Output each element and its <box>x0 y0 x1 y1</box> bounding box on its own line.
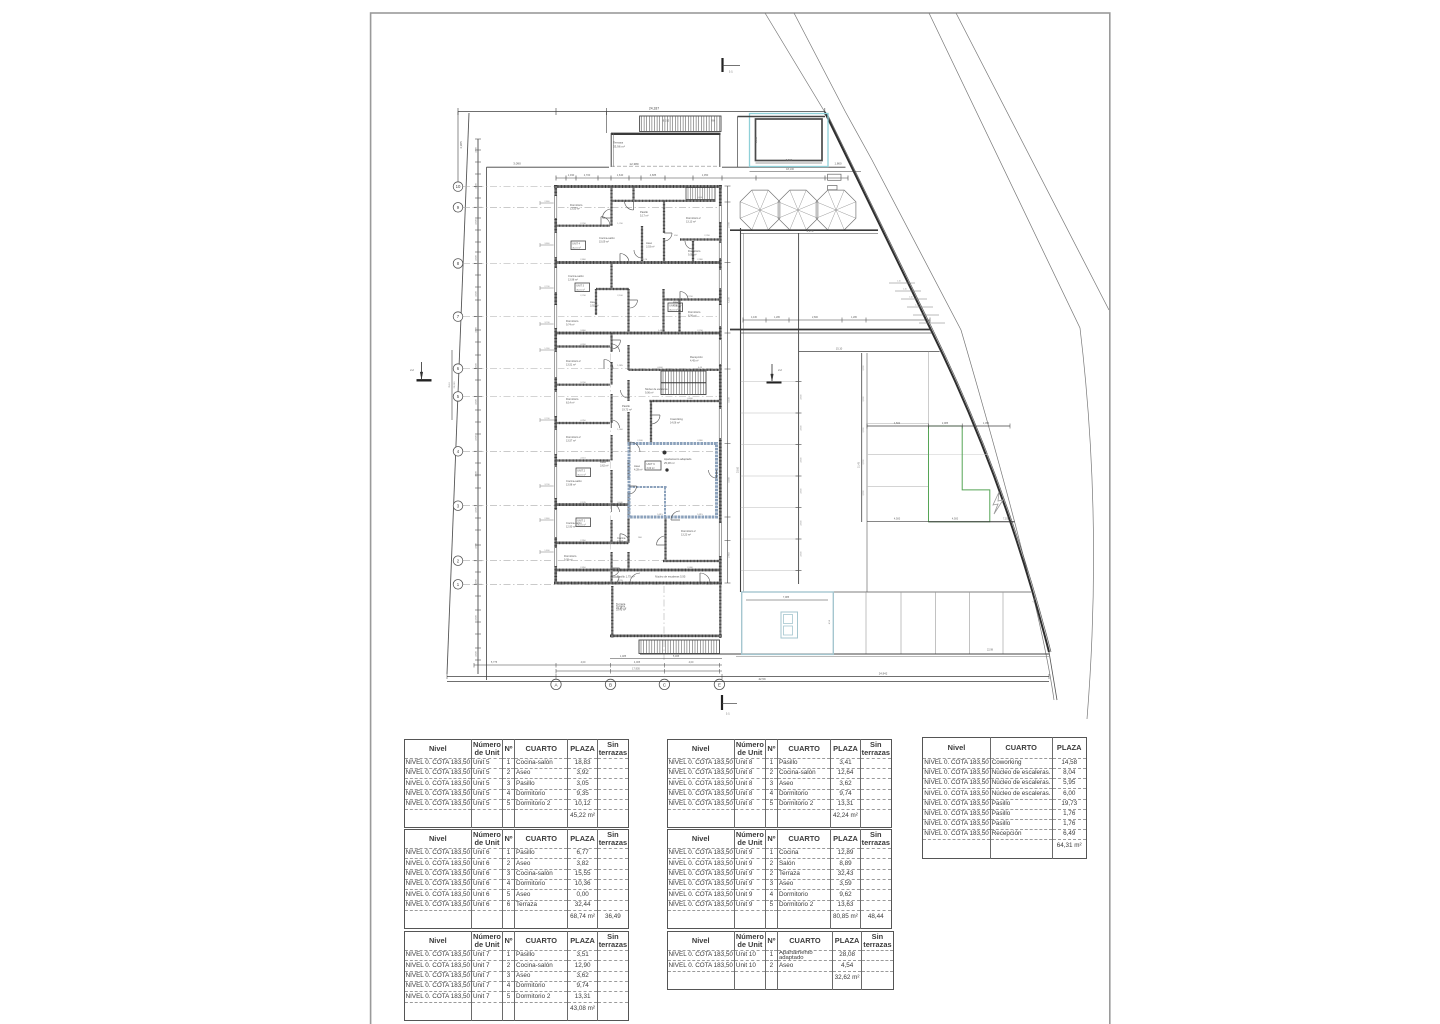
svg-text:Cocina-salón: Cocina-salón <box>568 274 584 278</box>
svg-text:5,800: 5,800 <box>786 158 793 162</box>
svg-text:4,250: 4,250 <box>580 420 586 422</box>
svg-text:1,485: 1,485 <box>620 655 627 658</box>
svg-text:1,26: 1,26 <box>643 259 648 261</box>
svg-text:4,500: 4,500 <box>476 542 478 548</box>
svg-text:2,500: 2,500 <box>801 488 803 494</box>
svg-text:7,985: 7,985 <box>783 596 790 599</box>
svg-text:4,45 m²: 4,45 m² <box>690 360 699 363</box>
svg-text:Aseo: Aseo <box>673 300 680 304</box>
svg-text:1,700: 1,700 <box>617 223 623 225</box>
svg-text:Aseo: Aseo <box>600 460 607 464</box>
svg-text:4,06 m²: 4,06 m² <box>673 305 682 308</box>
svg-text:42,59: 42,59 <box>759 677 766 681</box>
svg-text:3,92 m²: 3,92 m² <box>590 305 599 308</box>
svg-text:2,530: 2,530 <box>637 440 643 442</box>
svg-text:45,01 m²: 45,01 m² <box>576 288 585 291</box>
svg-text:2,700: 2,700 <box>544 286 550 288</box>
svg-text:UNIT 3: UNIT 3 <box>576 285 584 288</box>
svg-text:1,050: 1,050 <box>983 422 990 425</box>
svg-text:1,10: 1,10 <box>909 297 913 299</box>
svg-text:E: E <box>718 682 721 687</box>
svg-text:24,187: 24,187 <box>649 107 659 111</box>
svg-text:15,09 m²: 15,09 m² <box>599 241 609 244</box>
svg-text:1-1: 1-1 <box>729 70 733 74</box>
svg-text:Aseo: Aseo <box>646 241 653 245</box>
svg-text:45,01 m²: 45,01 m² <box>572 246 581 249</box>
svg-text:Dormitorio 2: Dormitorio 2 <box>681 529 696 533</box>
svg-text:18,100: 18,100 <box>786 167 794 171</box>
svg-text:13,23 m²: 13,23 m² <box>681 534 691 537</box>
svg-text:Coworking: Coworking <box>670 417 683 421</box>
svg-text:19,73 m²: 19,73 m² <box>622 409 632 412</box>
svg-text:2,700: 2,700 <box>580 295 586 297</box>
svg-text:4,50: 4,50 <box>829 619 831 624</box>
svg-text:Recepción: Recepción <box>690 355 703 359</box>
svg-text:2,760: 2,760 <box>704 235 710 237</box>
svg-text:17,905: 17,905 <box>632 668 640 671</box>
svg-text:Cocina-salón: Cocina-salón <box>599 236 615 240</box>
svg-text:2,700: 2,700 <box>544 418 550 420</box>
svg-text:650: 650 <box>674 235 678 237</box>
svg-text:3,440: 3,440 <box>617 502 623 504</box>
svg-text:8,06 m²: 8,06 m² <box>688 315 697 318</box>
svg-text:Aseo: Aseo <box>590 300 597 304</box>
svg-text:960: 960 <box>638 537 642 539</box>
svg-text:2,500: 2,500 <box>801 457 803 463</box>
svg-text:950: 950 <box>711 120 716 123</box>
svg-text:31,45: 31,45 <box>858 461 861 468</box>
svg-text:1,030: 1,030 <box>568 173 575 177</box>
svg-text:8,015: 8,015 <box>663 119 670 123</box>
svg-text:2,860: 2,860 <box>544 201 550 203</box>
svg-text:2-2: 2-2 <box>410 368 414 372</box>
svg-text:2,985: 2,985 <box>942 422 949 425</box>
svg-text:13,50 m²: 13,50 m² <box>570 208 580 211</box>
svg-text:3,180: 3,180 <box>729 476 731 482</box>
svg-text:4,600: 4,600 <box>697 197 703 199</box>
svg-text:3,700: 3,700 <box>544 484 550 486</box>
svg-text:13,51 m²: 13,51 m² <box>566 364 576 367</box>
svg-text:4,500: 4,500 <box>476 578 478 584</box>
svg-text:Apartamento adaptado: Apartamento adaptado <box>664 457 692 461</box>
svg-text:2,300: 2,300 <box>863 365 865 371</box>
svg-text:1,360: 1,360 <box>617 429 623 431</box>
svg-text:1,10: 1,10 <box>903 289 907 291</box>
svg-text:2,135: 2,135 <box>580 502 586 504</box>
svg-text:2,860: 2,860 <box>580 259 586 261</box>
svg-text:3,62 m²: 3,62 m² <box>600 465 609 468</box>
svg-text:Dormitorio: Dormitorio <box>564 554 577 558</box>
svg-text:2,950: 2,950 <box>580 540 586 542</box>
svg-text:UNIT 4: UNIT 4 <box>572 243 580 246</box>
svg-text:9,09 m²: 9,09 m² <box>564 559 573 562</box>
svg-text:4,985: 4,985 <box>459 141 463 149</box>
svg-text:3,090: 3,090 <box>513 162 521 166</box>
svg-text:7,191: 7,191 <box>1003 518 1010 521</box>
svg-text:5,775: 5,775 <box>491 661 498 664</box>
svg-text:3,860: 3,860 <box>544 243 550 245</box>
svg-text:2-2: 2-2 <box>778 368 782 372</box>
svg-text:1,860: 1,860 <box>835 162 842 166</box>
svg-text:2,700: 2,700 <box>584 173 591 177</box>
svg-text:1,050: 1,050 <box>702 173 709 177</box>
svg-text:4,500: 4,500 <box>476 362 478 368</box>
svg-text:Terraza: Terraza <box>616 602 626 606</box>
svg-text:2,700: 2,700 <box>729 221 731 227</box>
svg-text:2,980: 2,980 <box>697 440 703 442</box>
svg-text:4,500: 4,500 <box>476 326 478 332</box>
svg-text:15,10: 15,10 <box>836 347 843 351</box>
svg-text:5,465: 5,465 <box>673 655 680 658</box>
svg-text:B: B <box>609 682 612 687</box>
svg-text:12,90 m²: 12,90 m² <box>566 526 576 529</box>
svg-text:Núcleo de escaleras 5,95: Núcleo de escaleras 5,95 <box>655 575 686 579</box>
svg-text:4,600: 4,600 <box>657 367 663 369</box>
svg-text:2,500: 2,500 <box>801 425 803 431</box>
svg-text:2,500: 2,500 <box>801 394 803 400</box>
svg-text:1,10: 1,10 <box>921 313 925 315</box>
svg-text:Dormitorio 2: Dormitorio 2 <box>566 435 581 439</box>
svg-text:20,600: 20,600 <box>454 381 456 388</box>
svg-text:13,98 m²: 13,98 m² <box>568 279 578 282</box>
svg-text:4,500: 4,500 <box>476 218 478 224</box>
svg-text:Dormitorio 2: Dormitorio 2 <box>686 216 701 220</box>
svg-text:2,300: 2,300 <box>863 459 865 465</box>
svg-text:2,850: 2,850 <box>729 551 731 557</box>
svg-text:2,700: 2,700 <box>697 330 703 332</box>
svg-text:12,09 m²: 12,09 m² <box>617 541 627 544</box>
svg-text:Dormitorio: Dormitorio <box>566 319 579 323</box>
svg-text:4,500: 4,500 <box>476 650 478 656</box>
svg-text:9,05 m²: 9,05 m² <box>688 254 697 257</box>
svg-text:1,800: 1,800 <box>544 550 550 552</box>
svg-text:4,00: 4,00 <box>581 661 586 664</box>
svg-text:5,815: 5,815 <box>697 514 703 516</box>
svg-text:2,100: 2,100 <box>617 295 623 297</box>
svg-text:Dormitorio: Dormitorio <box>688 249 701 253</box>
svg-text:1,280: 1,280 <box>774 316 781 319</box>
svg-text:Dormitorio 2: Dormitorio 2 <box>566 359 581 363</box>
svg-text:4,260: 4,260 <box>580 344 586 346</box>
svg-text:Pasillo: Pasillo <box>640 210 648 214</box>
svg-text:4,500: 4,500 <box>476 398 478 404</box>
svg-text:4,500: 4,500 <box>476 470 478 476</box>
svg-text:22,98: 22,98 <box>987 649 994 652</box>
svg-text:13,57 m²: 13,57 m² <box>566 440 576 443</box>
svg-text:2,860: 2,860 <box>544 518 550 520</box>
svg-text:3,100: 3,100 <box>729 396 731 402</box>
svg-text:4,500: 4,500 <box>476 506 478 512</box>
svg-text:1,985: 1,985 <box>617 365 623 367</box>
svg-text:Núcleo de escaleras: Núcleo de escaleras <box>645 388 668 391</box>
svg-text:Dormitorio: Dormitorio <box>566 397 579 401</box>
svg-text:45,01 m²: 45,01 m² <box>577 473 586 476</box>
svg-text:1,260: 1,260 <box>544 348 550 350</box>
svg-text:1,640: 1,640 <box>617 173 624 177</box>
svg-text:3,860: 3,860 <box>580 330 586 332</box>
svg-text:Pasillo: Pasillo <box>622 404 630 408</box>
svg-text:1,10: 1,10 <box>927 321 931 323</box>
svg-text:4,500: 4,500 <box>952 518 959 521</box>
svg-text:5,100: 5,100 <box>729 296 731 302</box>
svg-text:1,280: 1,280 <box>851 316 858 319</box>
svg-text:4,28 m²: 4,28 m² <box>634 469 643 472</box>
svg-text:24,942: 24,942 <box>879 672 888 676</box>
svg-text:4,500: 4,500 <box>476 614 478 620</box>
svg-text:UNIT 9: UNIT 9 <box>647 462 656 466</box>
svg-text:Aseo: Aseo <box>634 464 641 468</box>
svg-text:12,380: 12,380 <box>629 162 639 166</box>
svg-text:35,10: 35,10 <box>449 381 451 387</box>
svg-text:10: 10 <box>456 184 461 189</box>
svg-text:3,700: 3,700 <box>544 322 550 324</box>
svg-text:13,13 m²: 13,13 m² <box>686 221 696 224</box>
svg-text:4,00: 4,00 <box>689 661 694 664</box>
svg-text:2,700: 2,700 <box>687 296 693 298</box>
svg-text:Cocina: Cocina <box>617 536 626 540</box>
svg-text:4,500: 4,500 <box>476 290 478 296</box>
svg-text:9,06 m²: 9,06 m² <box>645 392 654 395</box>
svg-text:2,300: 2,300 <box>863 490 865 496</box>
svg-text:4,500: 4,500 <box>894 518 901 521</box>
svg-text:3,700: 3,700 <box>580 382 586 384</box>
svg-text:9,74 m²: 9,74 m² <box>566 324 575 327</box>
svg-text:25,08 m²: 25,08 m² <box>664 461 675 465</box>
svg-text:3,03 m²: 3,03 m² <box>646 246 655 249</box>
svg-text:2,850: 2,850 <box>580 567 586 569</box>
svg-text:4,600: 4,600 <box>687 398 693 400</box>
svg-text:Cocina-salón: Cocina-salón <box>566 521 582 525</box>
svg-text:8,14 m²: 8,14 m² <box>566 402 575 405</box>
svg-text:3,00 m²: 3,00 m² <box>647 467 655 470</box>
svg-text:4,500: 4,500 <box>476 254 478 260</box>
svg-text:33,96 m²: 33,96 m² <box>613 145 625 149</box>
svg-text:14,06 m²: 14,06 m² <box>670 422 680 425</box>
svg-text:3,950: 3,950 <box>755 136 758 143</box>
svg-text:2,300: 2,300 <box>863 396 865 402</box>
svg-text:5,815: 5,815 <box>657 514 663 516</box>
svg-text:UNIT 2: UNIT 2 <box>577 470 585 473</box>
svg-text:4,430: 4,430 <box>751 316 758 319</box>
svg-text:4,500: 4,500 <box>476 146 478 152</box>
svg-text:1,10: 1,10 <box>897 281 901 283</box>
svg-text:2,090: 2,090 <box>687 567 693 569</box>
svg-text:4,005: 4,005 <box>634 661 641 664</box>
svg-text:5,17 m²: 5,17 m² <box>640 215 649 218</box>
svg-text:4,500: 4,500 <box>894 422 901 425</box>
svg-text:2,980: 2,980 <box>697 259 703 261</box>
svg-text:13,98 m²: 13,98 m² <box>566 484 576 487</box>
svg-text:45,01 m²: 45,01 m² <box>669 308 678 311</box>
svg-text:Dormitorio: Dormitorio <box>688 310 701 314</box>
svg-text:4,500: 4,500 <box>476 434 478 440</box>
svg-text:Cocina-salón: Cocina-salón <box>566 479 582 483</box>
svg-text:2,500: 2,500 <box>801 520 803 526</box>
svg-text:1-1: 1-1 <box>726 712 730 716</box>
svg-text:2,300: 2,300 <box>863 427 865 433</box>
svg-text:33,45 m²: 33,45 m² <box>616 606 626 610</box>
svg-text:1,10: 1,10 <box>915 305 919 307</box>
svg-text:2,500: 2,500 <box>801 551 803 557</box>
svg-text:2,110: 2,110 <box>580 458 586 460</box>
svg-text:4,500: 4,500 <box>476 182 478 188</box>
svg-text:Dormitorio: Dormitorio <box>570 203 583 207</box>
svg-text:2,800: 2,800 <box>812 316 819 319</box>
svg-text:4,685: 4,685 <box>650 173 657 177</box>
svg-text:2,700: 2,700 <box>580 223 586 225</box>
svg-text:6,470: 6,470 <box>807 229 814 233</box>
svg-text:20,60: 20,60 <box>737 466 740 473</box>
